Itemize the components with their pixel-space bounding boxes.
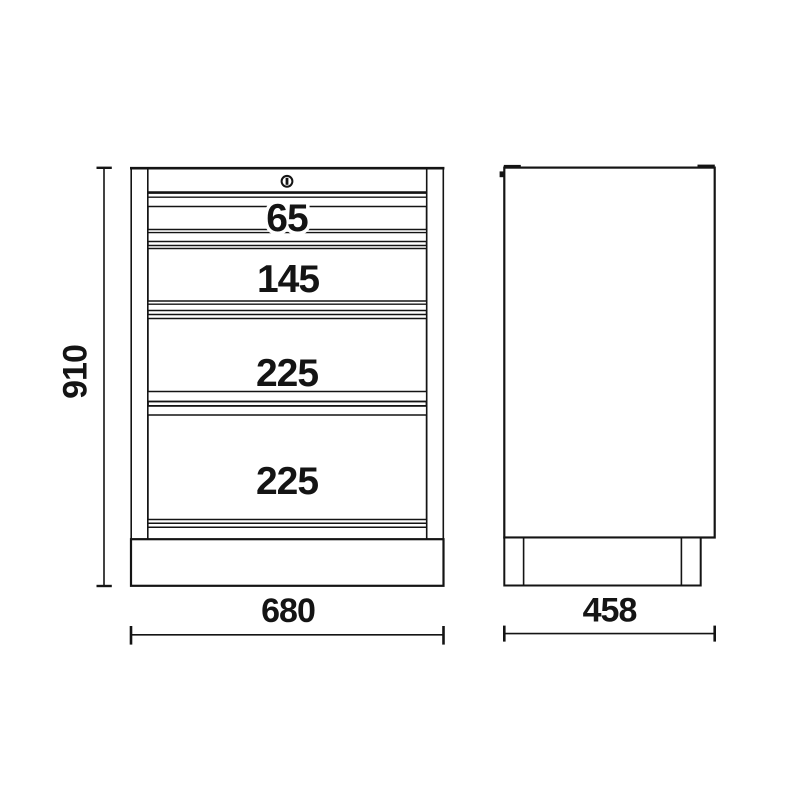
side-latch-detail [500,171,505,177]
front-base-plinth [131,539,444,586]
cabinet-technical-drawing: 65 145 225 225 910 680 458 [0,0,800,800]
drawer-rail [148,311,427,315]
depth-dimension: 458 [504,591,714,641]
height-dimension: 910 [57,168,112,586]
side-top-lip-front [504,165,521,168]
height-dimension-label: 910 [57,345,95,399]
front-right-stile [427,168,444,539]
side-view [500,165,715,586]
depth-dimension-label: 458 [583,591,637,629]
lock-keyhole-icon [282,176,293,187]
width-dimension-label: 680 [261,592,315,630]
drawer-label-1: 65 [266,197,308,240]
width-dimension: 680 [131,592,444,645]
drawer-label-3: 225 [256,352,318,395]
front-view: 65 145 225 225 [130,168,444,586]
drawer-label-4: 225 [256,460,318,503]
lock-slot [286,178,289,185]
drawer-rail [148,402,427,406]
drawer-label-2: 145 [257,258,319,301]
side-top-lip-back [698,165,715,168]
front-left-stile [131,168,148,539]
drawer-rail [148,242,427,246]
side-body [504,168,714,538]
side-base-plinth [504,538,700,586]
